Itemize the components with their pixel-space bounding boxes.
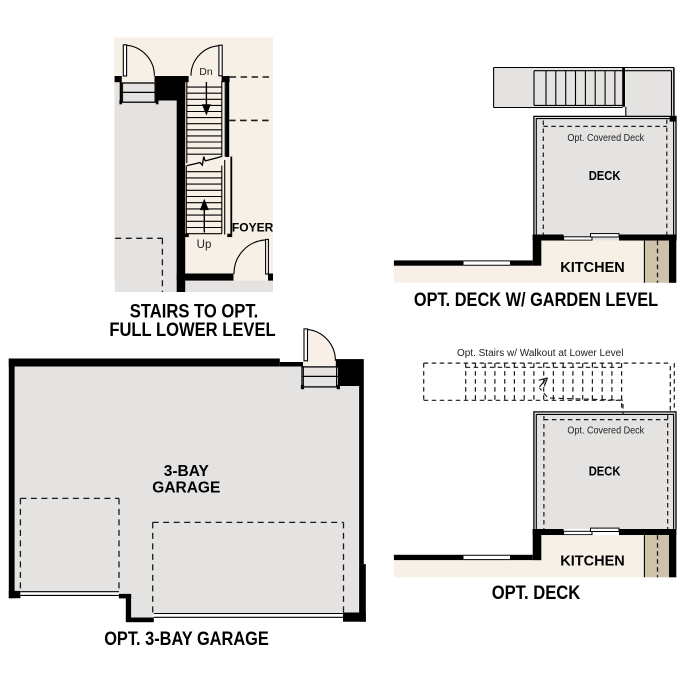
svg-text:OPT. DECK W/ GARDEN LEVEL: OPT. DECK W/ GARDEN LEVEL [414, 290, 659, 311]
svg-text:FOYER: FOYER [232, 220, 274, 234]
svg-text:DECK: DECK [589, 463, 621, 478]
svg-text:OPT. 3-BAY GARAGE: OPT. 3-BAY GARAGE [104, 629, 269, 650]
svg-text:Opt. Stairs w/ Walkout at Lowe: Opt. Stairs w/ Walkout at Lower Level [457, 348, 624, 359]
svg-text:DECK: DECK [589, 168, 621, 183]
svg-text:KITCHEN: KITCHEN [560, 260, 624, 276]
svg-text:GARAGE: GARAGE [152, 480, 220, 497]
svg-text:FULL LOWER LEVEL: FULL LOWER LEVEL [109, 320, 276, 341]
svg-text:Dn: Dn [199, 66, 213, 78]
svg-text:Opt. Covered Deck: Opt. Covered Deck [567, 425, 644, 437]
svg-text:3-BAY: 3-BAY [164, 463, 210, 480]
svg-text:OPT. DECK: OPT. DECK [492, 583, 581, 604]
svg-text:Opt. Covered Deck: Opt. Covered Deck [567, 132, 644, 144]
svg-text:KITCHEN: KITCHEN [560, 553, 624, 569]
svg-text:Up: Up [197, 239, 212, 251]
